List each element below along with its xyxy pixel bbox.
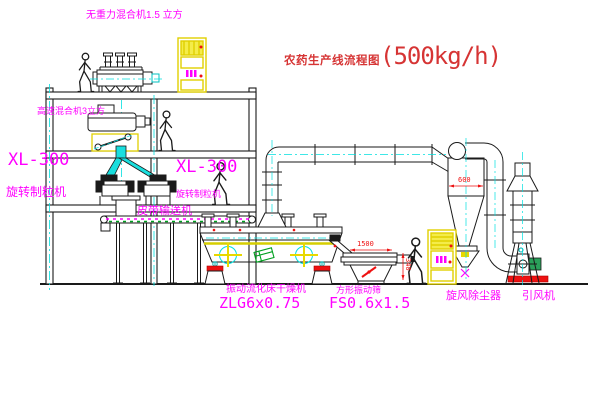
label-high-speed-mixer: 高速混合机3立方 <box>37 107 105 116</box>
control-cabinet-1 <box>178 38 206 92</box>
gravity-free-mixer <box>90 53 162 92</box>
dim-screen-340: 340 <box>404 258 411 271</box>
label-granulator-mid-name: 旋转制粒机 <box>176 190 221 199</box>
worker-figure <box>159 111 175 150</box>
label-dryer-model: ZLG6x0.75 <box>219 296 300 311</box>
title-chinese: 农药生产线流程图 <box>284 52 380 68</box>
drawing-title: 农药生产线流程图 (500kg/h) <box>284 42 501 70</box>
screen-feed-chute <box>330 235 352 253</box>
title-capacity: (500kg/h) <box>380 42 501 70</box>
label-screen-model: FS0.6x1.5 <box>329 296 410 311</box>
dim-screen-1500: 1500 <box>357 241 374 248</box>
label-fan: 引风机 <box>522 291 555 302</box>
control-cabinet-2 <box>428 230 456 284</box>
label-granulator-left-name: 旋转制粒机 <box>6 186 66 198</box>
cyclone-outlet-pipe <box>484 143 517 272</box>
discharge-pipe <box>112 196 140 216</box>
label-granulator-left-model: XL-300 <box>8 152 69 169</box>
dim-cyclone-600: 600 <box>458 177 471 184</box>
worker-figure <box>78 53 94 91</box>
label-belt-conveyor: 皮带输送机 <box>137 206 192 217</box>
label-gravity-free-mixer: 无重力混合机1.5 立方 <box>86 11 183 21</box>
label-granulator-mid-model: XL-300 <box>176 159 237 176</box>
vibration-motor-symbols <box>214 243 318 267</box>
dryer-pedestals <box>205 262 332 284</box>
process-flow-drawing: 农药生产线流程图 (500kg/h) 无重力混合机1.5 立方 高速混合机3立方… <box>0 0 600 403</box>
label-cyclone: 旋风除尘器 <box>446 291 501 302</box>
